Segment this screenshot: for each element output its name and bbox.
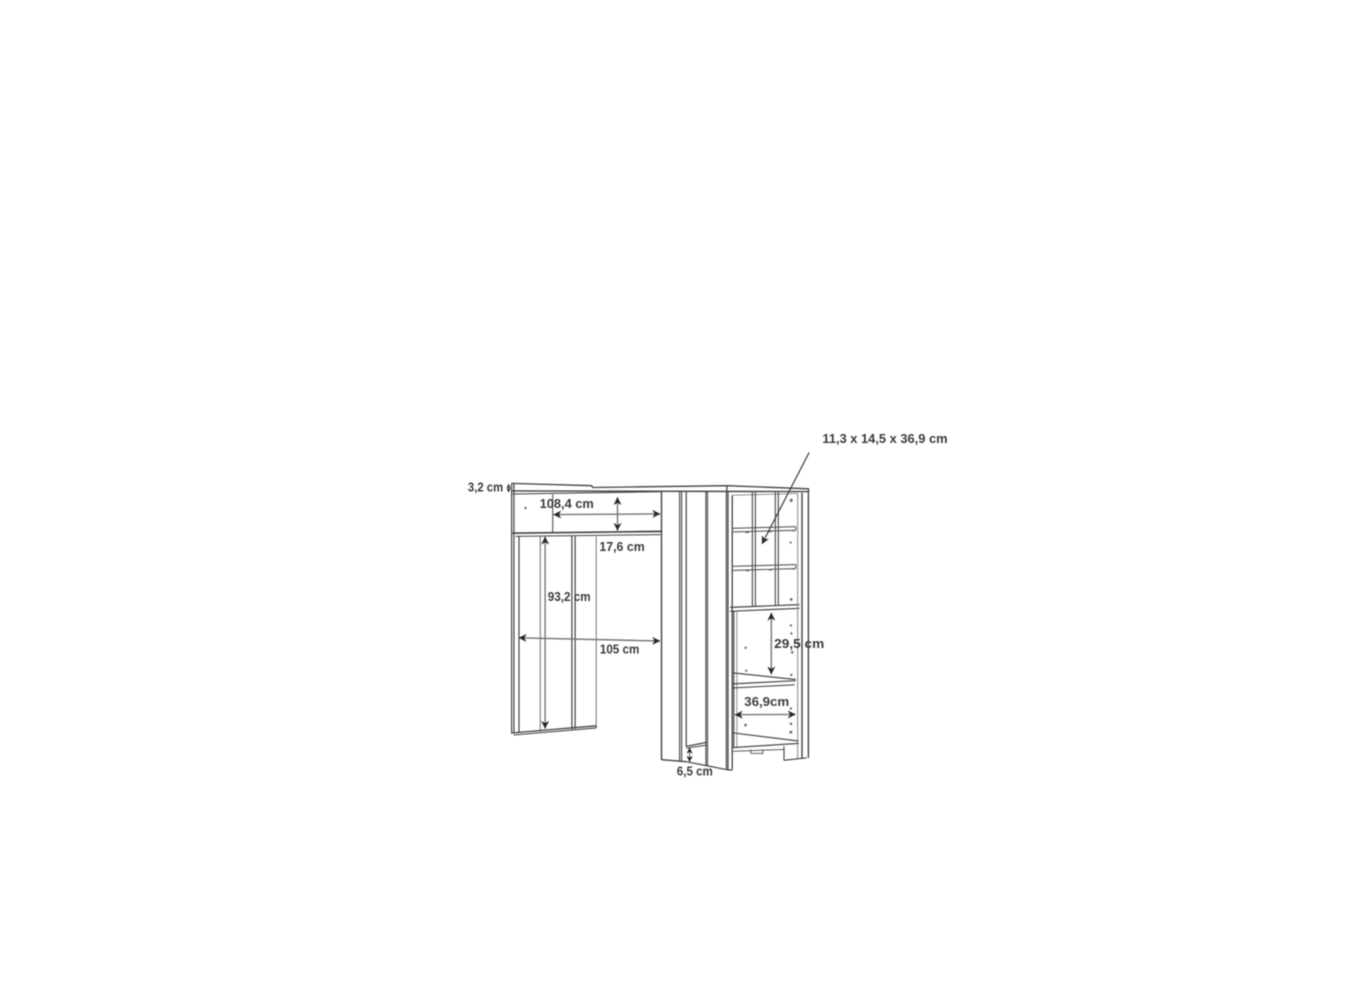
svg-text:6,5 cm: 6,5 cm	[677, 764, 713, 779]
svg-text:17,6 cm: 17,6 cm	[599, 539, 644, 554]
svg-text:11,3 x 14,5 x 36,9 cm: 11,3 x 14,5 x 36,9 cm	[822, 431, 947, 446]
svg-text:105 cm: 105 cm	[600, 642, 639, 657]
svg-text:93,2 cm: 93,2 cm	[548, 589, 591, 604]
svg-text:29,5 cm: 29,5 cm	[774, 636, 824, 651]
svg-text:108,4 cm: 108,4 cm	[540, 497, 594, 511]
svg-text:36,9cm: 36,9cm	[744, 694, 789, 709]
svg-text:3,2 cm: 3,2 cm	[468, 479, 503, 494]
